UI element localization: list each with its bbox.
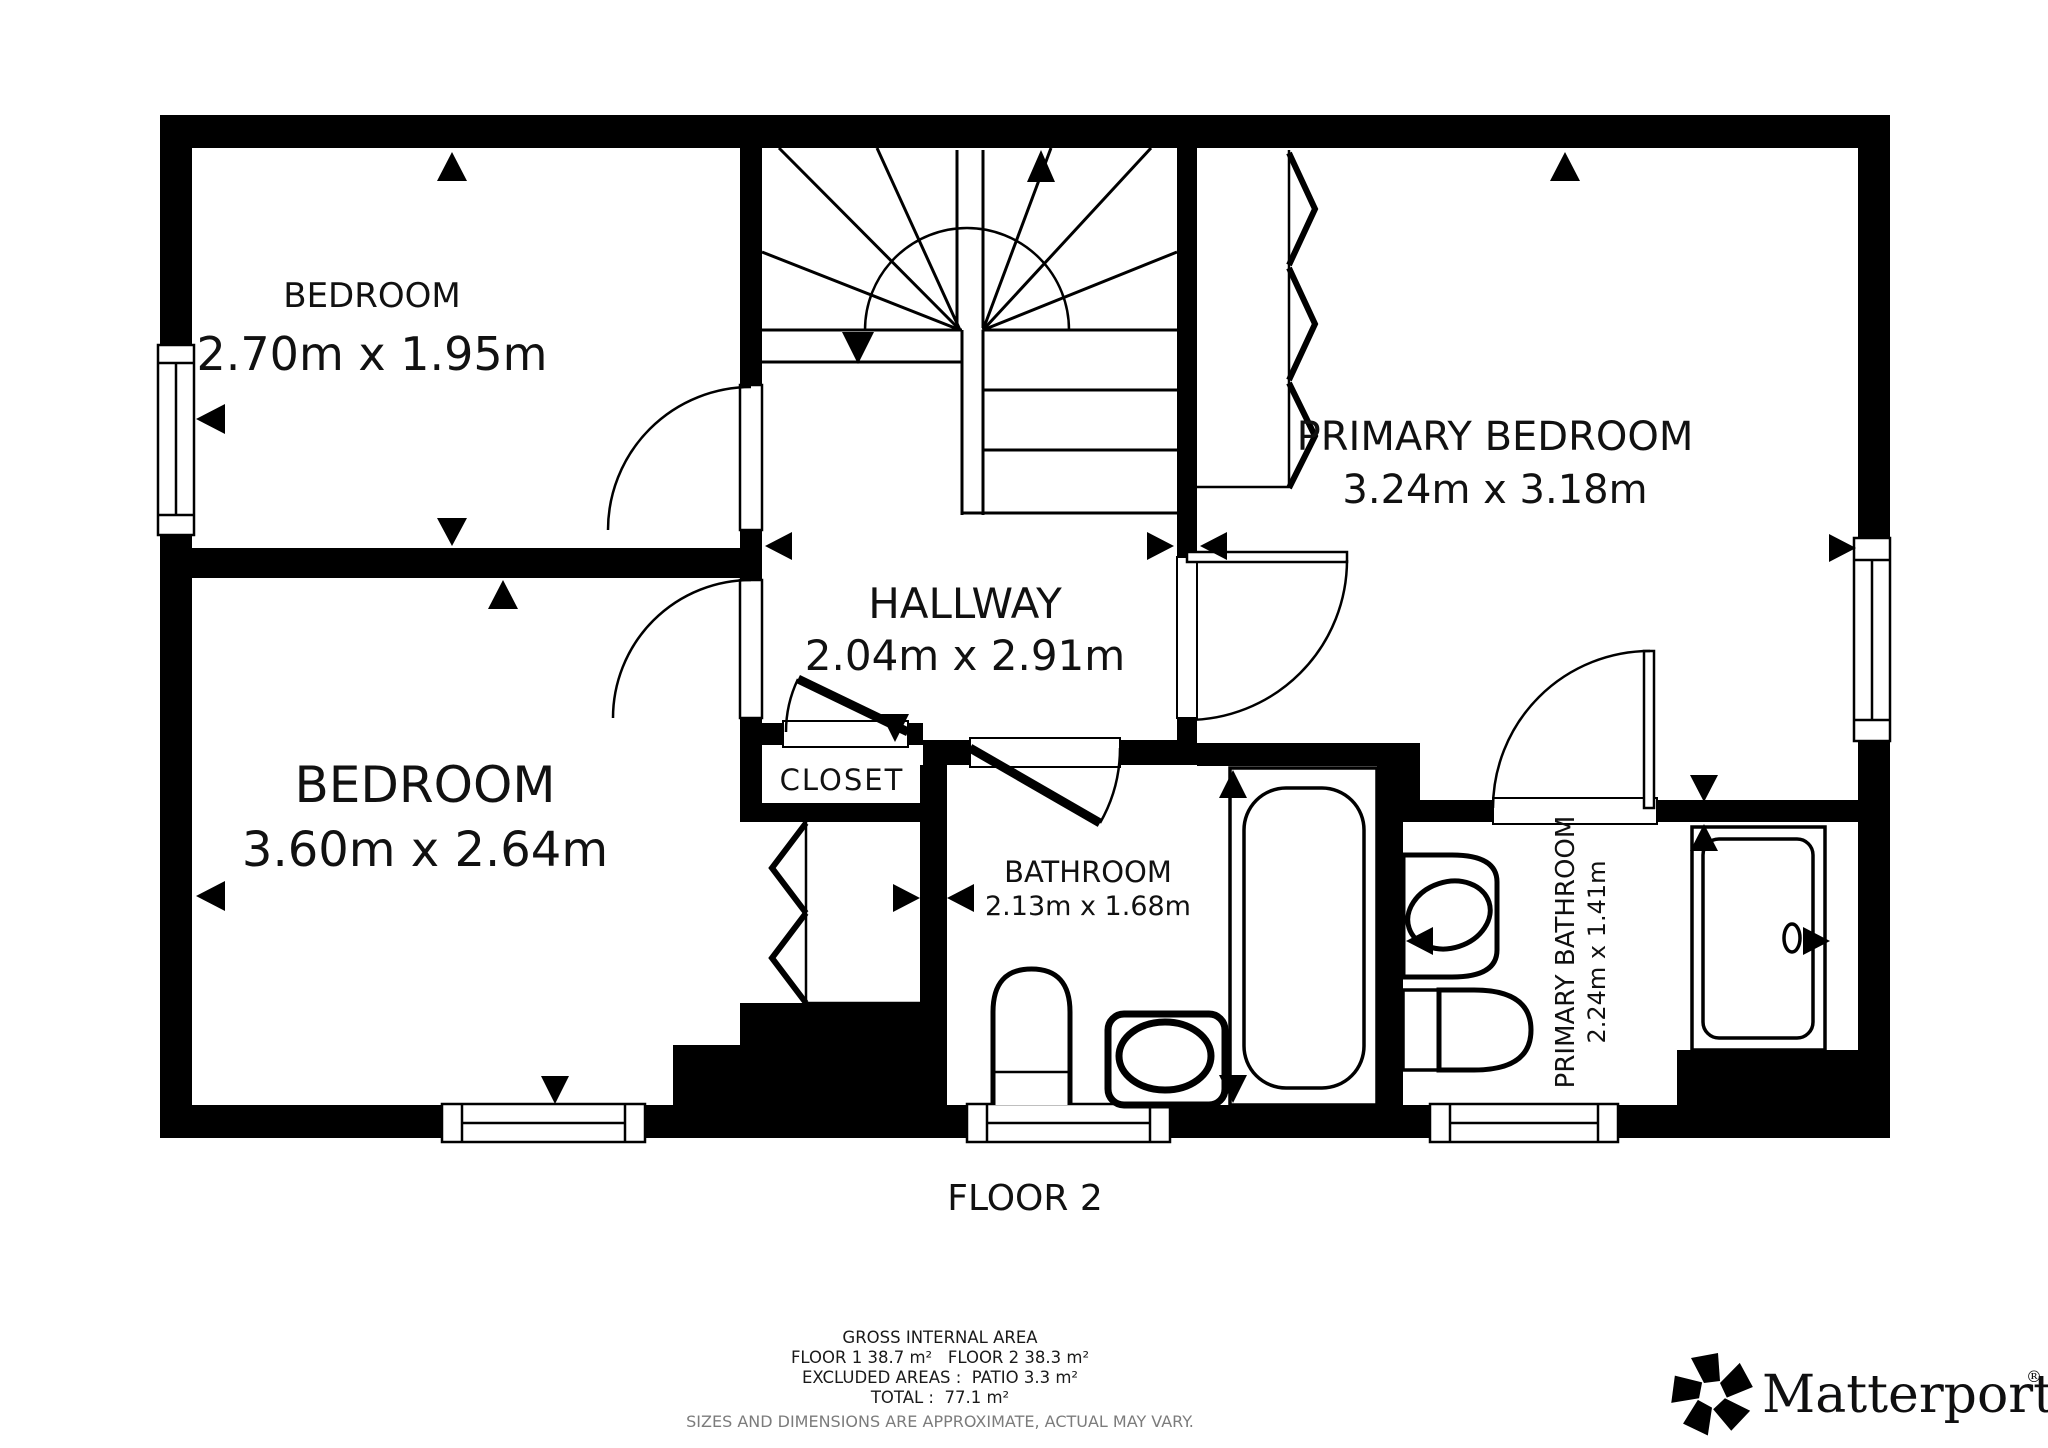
marker-down-primary-bath-wall (1690, 775, 1718, 802)
stair-down-arrow (842, 332, 874, 364)
stair-walk-line (865, 228, 1069, 330)
footer-total: TOTAL : 77.1 m² (870, 1388, 1009, 1407)
wall-mass-step (673, 1045, 740, 1105)
brand-logo: Matterport ® (1667, 1353, 2048, 1440)
label-bathroom-dims: 2.13m x 1.68m (985, 891, 1191, 922)
floor-plan-svg: BEDROOM 2.70m x 1.95m BEDROOM 3.60m x 2.… (0, 0, 2048, 1448)
wall-closet-bottom (740, 803, 947, 822)
label-bedroom1-name: BEDROOM (283, 276, 460, 316)
bathtub (1230, 768, 1377, 1105)
marker-up-bedroom1-top (437, 152, 467, 181)
door-primary-bathroom (1493, 651, 1657, 824)
marker-left-bedroom2 (196, 881, 225, 911)
primary-sink (1399, 855, 1499, 977)
primary-toilet (1403, 990, 1531, 1070)
floor-title: FLOOR 2 (947, 1178, 1103, 1219)
marker-up-bedroom2-top (488, 580, 518, 609)
marker-right-niche (893, 884, 920, 912)
window-primary-bathroom-bottom (1430, 1104, 1618, 1142)
label-bathroom-name: BATHROOM (1004, 855, 1172, 889)
marker-up-primary-bedroom-top (1550, 152, 1580, 181)
wall-mass-below-shower (1677, 1050, 1858, 1105)
matterport-pinwheel-icon (1667, 1353, 1754, 1440)
door-primary-bedroom (1177, 552, 1347, 720)
marker-right-hallway-wall (1147, 532, 1174, 560)
footer-title: GROSS INTERNAL AREA (842, 1328, 1038, 1347)
brand-registered-mark: ® (2026, 1367, 2042, 1386)
label-bedroom2-name: BEDROOM (295, 756, 556, 814)
marker-left-hallway-wall (765, 532, 792, 560)
wall-hallway-right-upper (1177, 148, 1197, 557)
door-bedroom2 (613, 580, 762, 718)
wall-bathroom-divider (1377, 743, 1403, 1105)
wall-bedroom-divider (192, 548, 762, 578)
window-right (1854, 538, 1890, 741)
brand-wordmark: Matterport (1762, 1365, 2048, 1425)
footer-block: GROSS INTERNAL AREA FLOOR 1 38.7 m² FLOO… (686, 1328, 1194, 1431)
marker-left-window-left (196, 404, 225, 434)
door-closet (783, 679, 908, 747)
marker-left-bathroom (947, 884, 974, 912)
footer-disclaimer: SIZES AND DIMENSIONS ARE APPROXIMATE, AC… (686, 1412, 1194, 1431)
wall-mass-below-niche (740, 1003, 947, 1105)
label-hallway-dims: 2.04m x 2.91m (805, 631, 1125, 680)
staircase (762, 148, 1177, 515)
marker-right-window-right (1829, 534, 1856, 562)
label-primary-bathroom-name: PRIMARY BATHROOM (1551, 816, 1581, 1089)
label-primary-bedroom-name: PRIMARY BEDROOM (1297, 414, 1694, 460)
wall-outer-left (160, 115, 192, 1138)
wall-bedroom1-right-lower (740, 530, 762, 580)
wall-bedroom1-right-upper (740, 148, 762, 385)
label-bedroom1-dims: 2.70m x 1.95m (197, 327, 548, 381)
window-bedroom2-bottom (442, 1104, 645, 1142)
footer-excluded: EXCLUDED AREAS : PATIO 3.3 m² (802, 1368, 1078, 1387)
wall-outer-top (160, 115, 1890, 148)
label-primary-bedroom-dims: 3.24m x 3.18m (1342, 467, 1647, 513)
window-bathroom-bottom (967, 1104, 1170, 1142)
floor-plan-page: BEDROOM 2.70m x 1.95m BEDROOM 3.60m x 2.… (0, 0, 2048, 1448)
footer-floors: FLOOR 1 38.7 m² FLOOR 2 38.3 m² (791, 1348, 1089, 1367)
primary-bathroom-fixtures (1399, 827, 1825, 1070)
stair-up-arrow (1027, 150, 1055, 182)
wall-hallway-right-lower (1177, 718, 1197, 745)
toilet (1108, 1014, 1225, 1105)
bathroom-fixtures (993, 768, 1377, 1105)
pedestal-sink (993, 969, 1070, 1105)
bedroom2-closet (772, 820, 920, 1003)
label-closet: CLOSET (780, 763, 905, 797)
label-hallway-name: HALLWAY (868, 579, 1062, 628)
marker-down-bedroom1-bottom (437, 518, 467, 546)
window-left (158, 345, 194, 535)
label-primary-bathroom-dims: 2.24m x 1.41m (1583, 860, 1611, 1043)
door-bedroom1 (608, 385, 762, 530)
marker-down-bedroom2-window (541, 1076, 569, 1104)
door-bathroom (970, 738, 1120, 823)
label-bedroom2-dims: 3.60m x 2.64m (242, 822, 608, 878)
